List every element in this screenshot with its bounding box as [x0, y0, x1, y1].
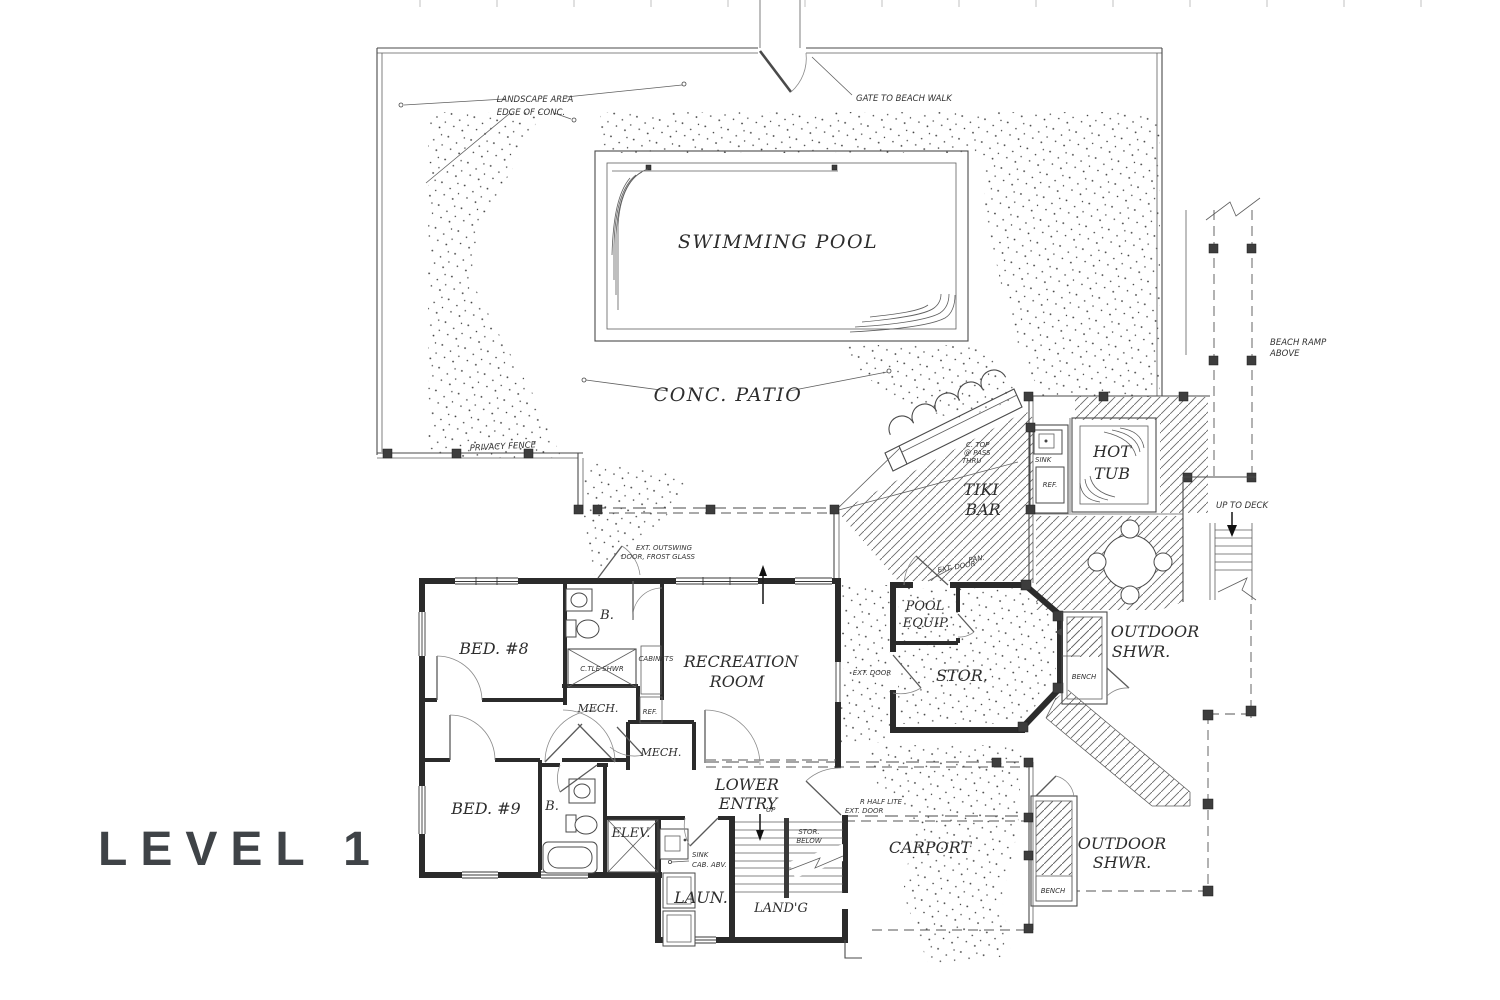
label-swimming-pool: SWIMMING POOL	[678, 231, 878, 253]
label-edge-of-conc: EDGE OF CONC.	[497, 108, 565, 118]
label-pool-equip-1: POOL	[905, 599, 945, 614]
label-bench-upper: BENCH	[1072, 673, 1097, 681]
label-bar-ref: REF.	[1043, 481, 1058, 489]
label-mech1: MECH.	[577, 702, 619, 715]
label-ctop-3: THRU	[962, 457, 982, 465]
label-stor-below-2: BELOW	[796, 837, 822, 845]
label-beach-ramp-1: BEACH RAMP	[1270, 338, 1327, 348]
label-pool-equip-2: EQUIP.	[902, 616, 949, 631]
label-lower: LOWER	[714, 775, 779, 794]
label-recreation-1: RECREATION	[683, 652, 799, 671]
label-gate-to-beach-walk: GATE TO BEACH WALK	[856, 94, 953, 104]
floor-plan-page: LANDSCAPE AREA EDGE OF CONC. GATE TO BEA…	[0, 0, 1500, 1000]
label-laun: LAUN.	[673, 888, 728, 907]
beach-walk-path	[760, 0, 800, 48]
pool-steps-bottom-right	[850, 294, 955, 332]
label-carport: CARPORT	[889, 838, 972, 857]
label-stor: STOR.	[936, 666, 988, 685]
label-mech2: MECH.	[640, 746, 682, 759]
label-tiki-1: TIKI	[963, 480, 999, 499]
label-elev: ELEV.	[611, 826, 651, 841]
label-up-to-deck: UP TO DECK	[1216, 501, 1269, 511]
label-bench-lower: BENCH	[1041, 887, 1066, 895]
label-ext-door-stor: EXT. DOOR	[853, 669, 892, 677]
label-r-half-2: EXT. DOOR	[845, 807, 884, 815]
label-recreation-2: ROOM	[709, 672, 765, 691]
label-outswing-2: DOOR, FROST GLASS	[621, 553, 695, 561]
label-tub: TUB	[1094, 464, 1130, 483]
label-bar-sink: SINK	[1035, 456, 1053, 464]
label-beach-ramp-2: ABOVE	[1269, 349, 1300, 359]
label-bed9: BED. #9	[450, 799, 520, 818]
label-bath8: B.	[599, 608, 614, 623]
label-bath9: B.	[544, 799, 559, 814]
label-tiki-2: BAR	[964, 500, 1000, 519]
page-edge-ticks	[420, 0, 1421, 7]
entry-stairs	[735, 565, 843, 898]
label-outswing-1: EXT. OUTSWING	[636, 544, 693, 552]
label-landg: LAND'G	[753, 901, 808, 916]
label-ctop-2: @ PASS	[964, 449, 991, 457]
label-ctile-shwr: C.TLE SHWR	[580, 665, 624, 673]
label-hot: HOT	[1092, 442, 1132, 461]
label-landscape-area: LANDSCAPE AREA	[497, 95, 574, 105]
level-title: LEVEL 1	[98, 822, 383, 877]
label-ref-house: REF.	[643, 708, 658, 716]
label-up: UP	[766, 806, 776, 814]
label-outdoor-shwr-l1: OUTDOOR	[1078, 834, 1166, 853]
label-ctop-1: C. TOP	[966, 441, 990, 449]
label-outdoor-shwr-u2: SHWR.	[1112, 642, 1171, 661]
label-stor-below-1: STOR.	[798, 828, 819, 836]
label-sink-cab-1: SINK	[692, 851, 710, 859]
label-sink-cab-2: CAB. ABV.	[692, 861, 727, 869]
label-cabinets: CABINETS	[639, 655, 674, 663]
label-outdoor-shwr-l2: SHWR.	[1093, 853, 1152, 872]
label-r-half-1: R HALF LITE	[860, 798, 903, 806]
pool-steps-top-left	[612, 169, 648, 310]
label-conc-patio: CONC. PATIO	[654, 384, 803, 406]
label-bed8: BED. #8	[458, 639, 528, 658]
label-outdoor-shwr-u1: OUTDOOR	[1111, 622, 1199, 641]
gate	[760, 51, 806, 92]
